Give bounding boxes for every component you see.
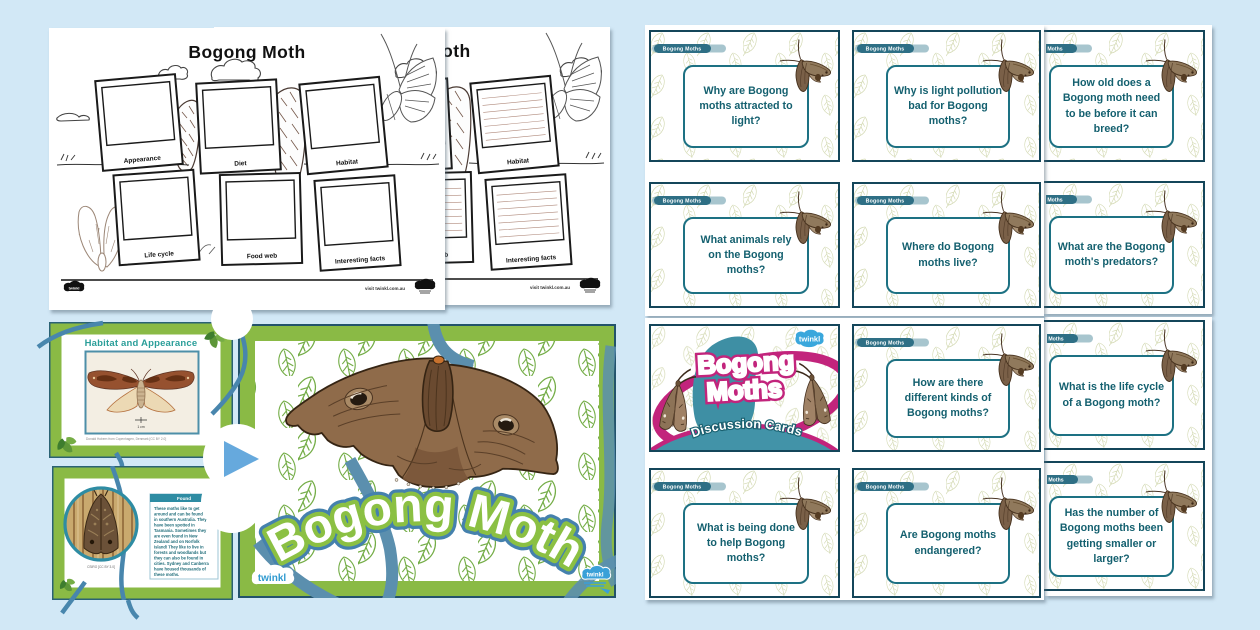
svg-text:Moths: Moths bbox=[1048, 477, 1063, 483]
svg-text:Bogong Moths: Bogong Moths bbox=[866, 198, 905, 204]
svg-text:Found: Found bbox=[177, 496, 191, 501]
svg-text:Bogong Moths: Bogong Moths bbox=[866, 46, 905, 52]
svg-text:Bogong Moth: Bogong Moth bbox=[188, 42, 305, 62]
svg-text:Bogong Moths: Bogong Moths bbox=[866, 484, 905, 490]
svg-text:Moths: Moths bbox=[706, 375, 783, 407]
svg-text:Moths: Moths bbox=[1048, 336, 1063, 342]
svg-text:twinkl: twinkl bbox=[69, 287, 80, 291]
svg-text:Diet: Diet bbox=[234, 160, 247, 168]
svg-text:twinkl: twinkl bbox=[586, 573, 603, 579]
svg-text:twinkl: twinkl bbox=[258, 573, 287, 584]
svg-text:visit twinkl.com.au: visit twinkl.com.au bbox=[530, 285, 570, 290]
svg-text:Donald Hobern from Copenhagen,: Donald Hobern from Copenhagen, Denmark [… bbox=[86, 437, 166, 441]
svg-text:CSIRO [CC BY 3.0]: CSIRO [CC BY 3.0] bbox=[87, 565, 115, 569]
svg-text:Moths: Moths bbox=[1047, 197, 1062, 203]
svg-text:twinkl: twinkl bbox=[799, 335, 820, 344]
svg-text:Bogong Moths: Bogong Moths bbox=[663, 46, 702, 52]
svg-text:Bogong Moths: Bogong Moths bbox=[866, 340, 905, 346]
svg-text:Bogong Moths: Bogong Moths bbox=[663, 198, 702, 204]
svg-text:Habitat and Appearance: Habitat and Appearance bbox=[85, 338, 198, 349]
svg-text:Moths: Moths bbox=[1047, 46, 1062, 52]
svg-text:Food web: Food web bbox=[247, 253, 278, 261]
svg-text:Bogong Moths: Bogong Moths bbox=[663, 484, 702, 490]
svg-text:visit twinkl.com.au: visit twinkl.com.au bbox=[365, 286, 405, 291]
svg-text:1 cm: 1 cm bbox=[137, 425, 145, 429]
